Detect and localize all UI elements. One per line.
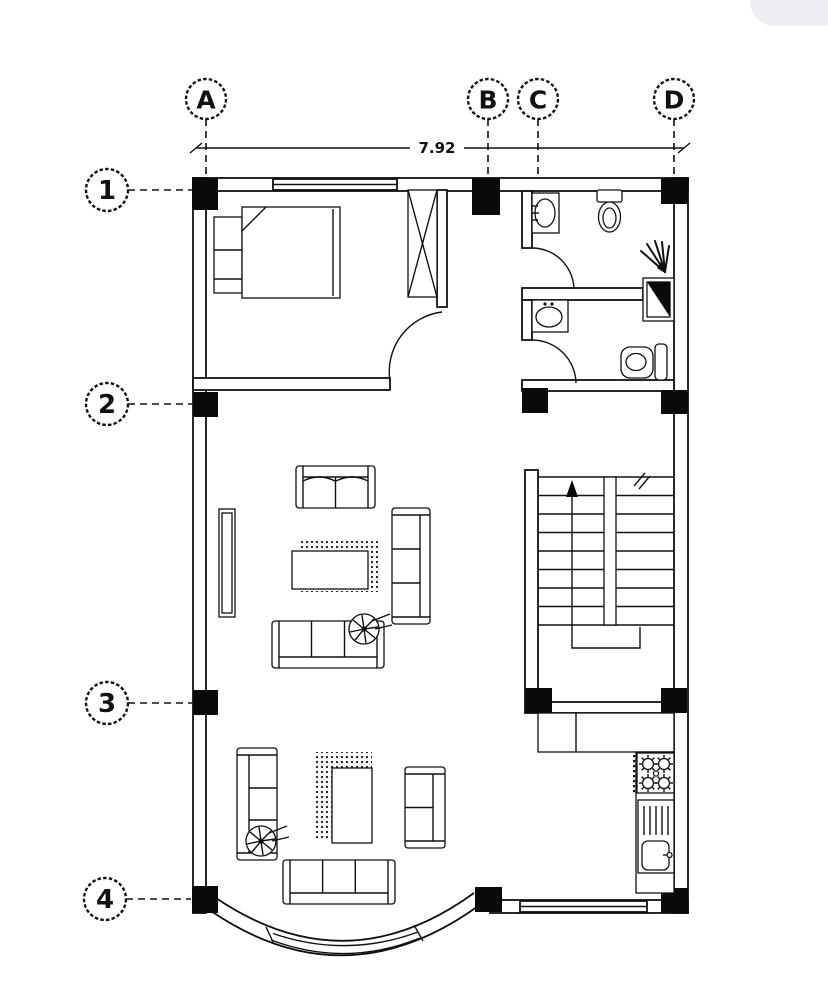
bed — [242, 207, 340, 298]
faucet-icon — [543, 302, 546, 305]
kitchen-sink-icon — [638, 800, 674, 873]
tv-console — [219, 509, 235, 617]
sofa-three-seat-side — [392, 508, 430, 624]
kitchen — [538, 713, 674, 893]
sink-faucet — [667, 853, 672, 858]
grid-label: B — [478, 86, 497, 115]
toilet — [597, 190, 622, 232]
column-a2 — [193, 392, 218, 417]
wall-stair-west — [525, 470, 538, 713]
kitchen-counter-top — [538, 713, 674, 752]
wash-basin — [532, 193, 559, 233]
bottom-window — [520, 901, 647, 912]
bathroom-top-door-arc — [532, 248, 574, 289]
grid-bubble-1: 1 — [86, 169, 128, 211]
faucet-icon — [550, 302, 553, 305]
plant-icon — [246, 826, 289, 856]
column-b4 — [475, 887, 502, 912]
wall-bath-west-upper — [522, 191, 532, 248]
wall-east — [674, 178, 688, 913]
coffee-table — [332, 768, 372, 843]
top-window — [273, 179, 397, 190]
toilet — [621, 344, 667, 380]
dimension-value: 7.92 — [418, 139, 455, 157]
grid-bubble-d: D — [654, 79, 694, 119]
column-c2 — [522, 388, 548, 413]
dimension-line: 7.92 — [190, 139, 690, 157]
grid-label: D — [664, 86, 685, 115]
column-a4 — [192, 886, 218, 913]
stair-up-arrow-icon — [566, 480, 578, 497]
shower-spray-icon — [641, 241, 669, 272]
column-a3 — [193, 690, 218, 715]
sofa-two-seat — [296, 466, 375, 508]
grid-bubble-4: 4 — [84, 878, 126, 920]
column-a1 — [192, 178, 218, 210]
plant-icon — [349, 614, 392, 644]
column-d2 — [661, 390, 688, 414]
wash-basin — [532, 300, 568, 332]
grid-label: A — [196, 86, 216, 115]
wall-bath-west-lower — [522, 300, 532, 340]
grid-bubble-a: A — [186, 79, 226, 119]
sofa-three-seat — [283, 860, 395, 904]
stair-stringer — [604, 477, 616, 625]
grid-bubble-3: 3 — [86, 682, 128, 724]
coffee-table — [292, 551, 368, 589]
column-c3 — [525, 688, 552, 713]
staircase — [538, 473, 674, 648]
headboard-shelf — [214, 217, 242, 293]
gas-stove-icon — [633, 753, 674, 793]
grid-bubble-c: C — [518, 79, 558, 119]
stove-hatch — [633, 755, 635, 792]
wall-west — [193, 178, 206, 913]
shower-unit — [641, 241, 674, 321]
wall-bedroom-south — [193, 378, 390, 390]
wall-understair — [538, 702, 674, 713]
column-b1 — [472, 178, 500, 215]
grid-label: 4 — [96, 885, 114, 915]
bow-outer-arc — [211, 904, 481, 955]
column-d3 — [661, 688, 687, 713]
floor-plan-page: 7.92 A B C — [0, 0, 828, 992]
sofa-two-seat-side — [405, 767, 445, 848]
wall-bedroom-east — [437, 190, 447, 307]
grid-label: 3 — [98, 689, 116, 719]
grid-bubble-b: B — [468, 79, 508, 119]
grid-label: 1 — [98, 176, 116, 206]
grid-label: 2 — [98, 390, 116, 420]
living-area — [219, 466, 430, 668]
bedroom-furniture — [214, 190, 437, 298]
wall-north — [193, 178, 688, 191]
wardrobe — [408, 190, 437, 297]
bathroom-bottom-door-arc — [532, 340, 576, 383]
bedroom-door-arc — [389, 312, 442, 381]
grid-label: C — [529, 86, 547, 115]
wall-bath-divider — [522, 288, 643, 300]
floor-plan-drawing: 7.92 A B C — [0, 0, 828, 992]
lounge-area — [237, 748, 445, 904]
grid-bubble-2: 2 — [86, 383, 128, 425]
column-d1 — [661, 178, 688, 204]
